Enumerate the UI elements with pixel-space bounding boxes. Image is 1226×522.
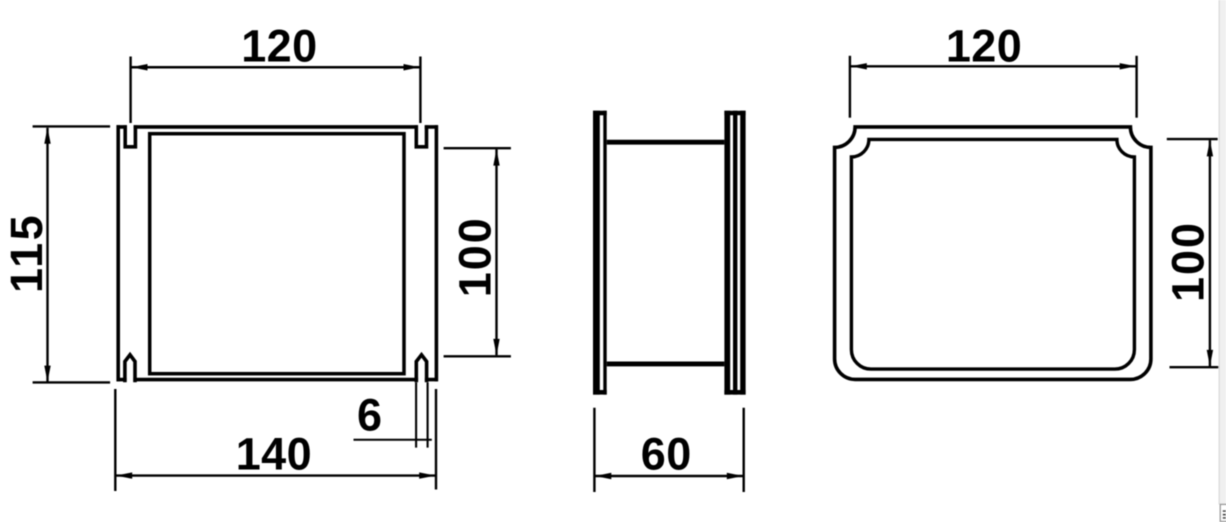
svg-text:140: 140: [236, 429, 312, 480]
svg-text:60: 60: [641, 429, 692, 480]
svg-text:100: 100: [450, 216, 501, 297]
svg-text:120: 120: [241, 21, 317, 72]
svg-text:100: 100: [1163, 221, 1214, 302]
svg-text:120: 120: [946, 20, 1022, 71]
svg-text:115: 115: [1, 213, 52, 293]
svg-text:6: 6: [357, 389, 382, 440]
